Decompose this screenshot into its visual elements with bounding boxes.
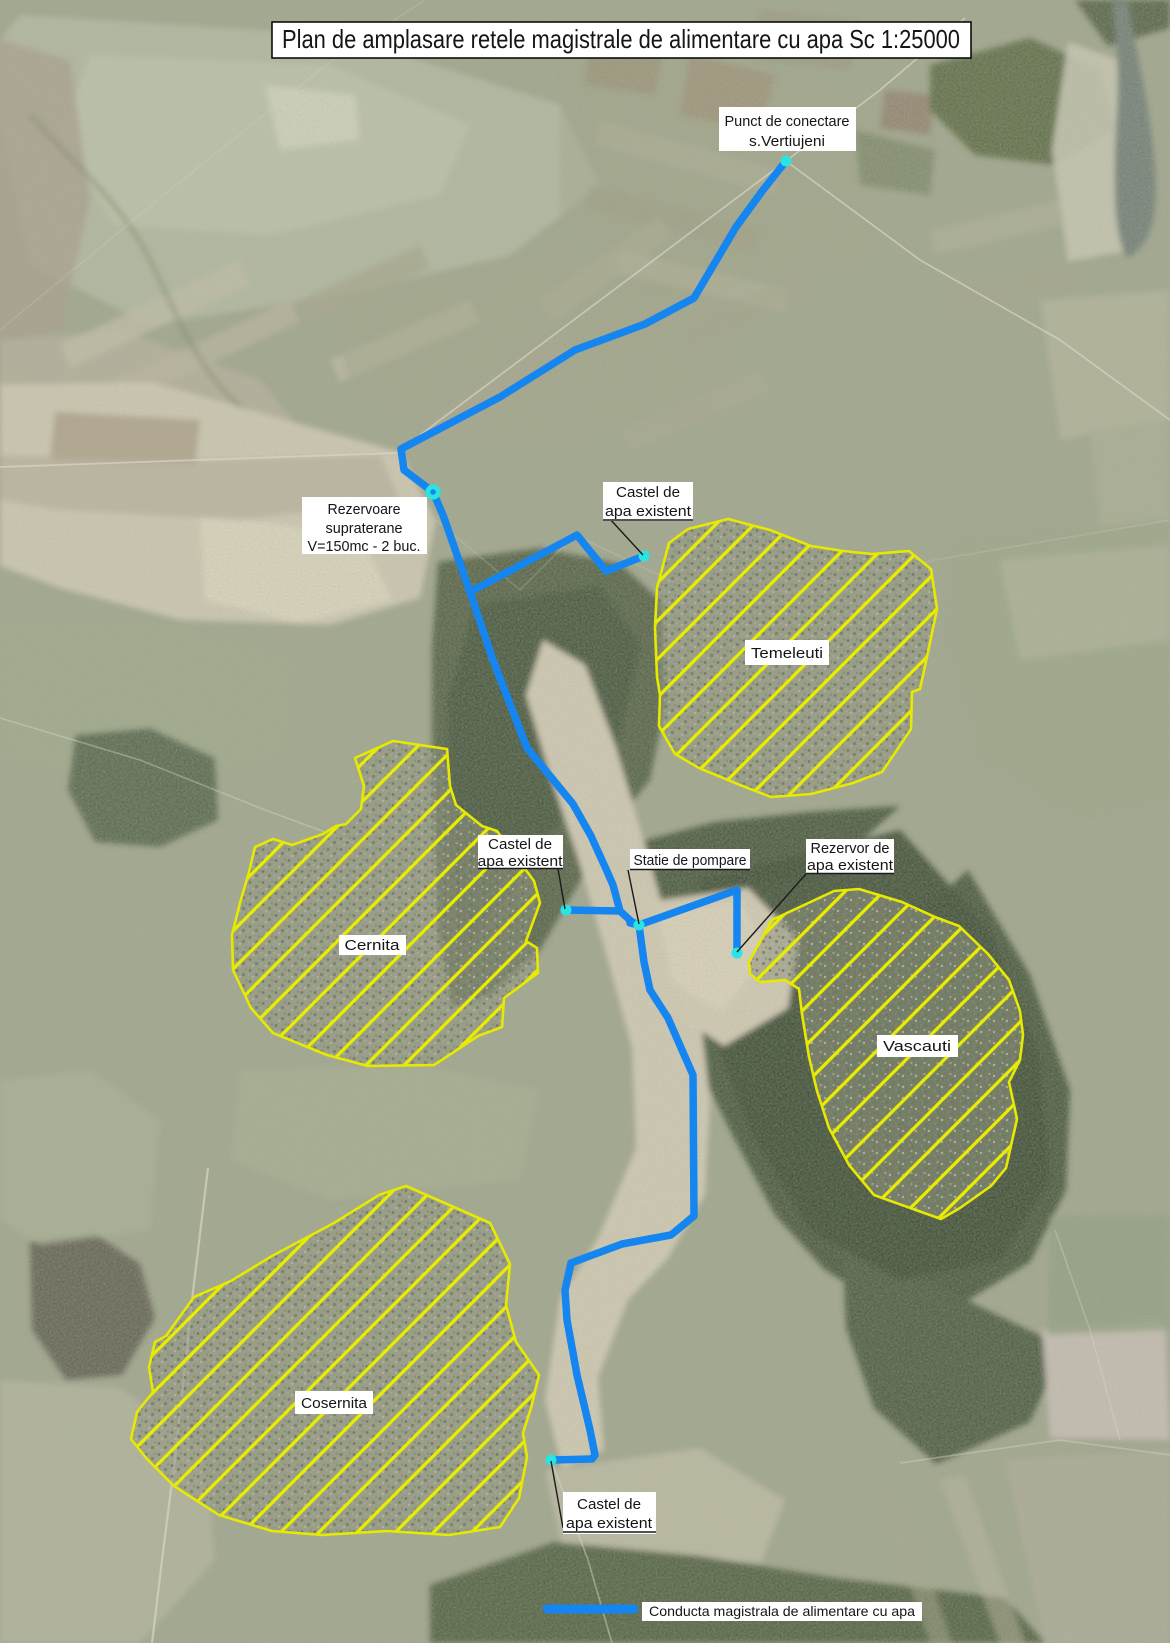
- svg-text:Plan de amplasare retele magis: Plan de amplasare retele magistrale de a…: [282, 24, 960, 54]
- svg-text:apa existent: apa existent: [566, 1515, 653, 1532]
- svg-text:Rezervor de: Rezervor de: [811, 840, 890, 857]
- svg-text:apa existent: apa existent: [478, 853, 564, 870]
- svg-text:Castel de: Castel de: [577, 1496, 641, 1513]
- svg-text:Conducta magistrala de aliment: Conducta magistrala de alimentare cu apa: [649, 1603, 915, 1619]
- svg-text:apa existent: apa existent: [605, 503, 692, 520]
- svg-text:Cosernita: Cosernita: [301, 1395, 368, 1412]
- svg-text:V=150mc - 2 buc.: V=150mc - 2 buc.: [308, 538, 421, 555]
- svg-text:Rezervoare: Rezervoare: [328, 501, 401, 518]
- svg-text:apa existent: apa existent: [807, 857, 894, 874]
- svg-text:s.Vertiujeni: s.Vertiujeni: [749, 133, 825, 150]
- svg-text:Temeleuti: Temeleuti: [751, 645, 823, 662]
- svg-text:Punct de conectare: Punct de conectare: [725, 113, 850, 130]
- svg-text:supraterane: supraterane: [326, 520, 403, 537]
- svg-text:Cernita: Cernita: [345, 937, 401, 954]
- svg-text:Statie de pompare: Statie de pompare: [634, 852, 747, 869]
- svg-text:Vascauti: Vascauti: [883, 1038, 951, 1055]
- svg-text:Castel de: Castel de: [488, 836, 552, 853]
- svg-text:Castel de: Castel de: [616, 484, 680, 501]
